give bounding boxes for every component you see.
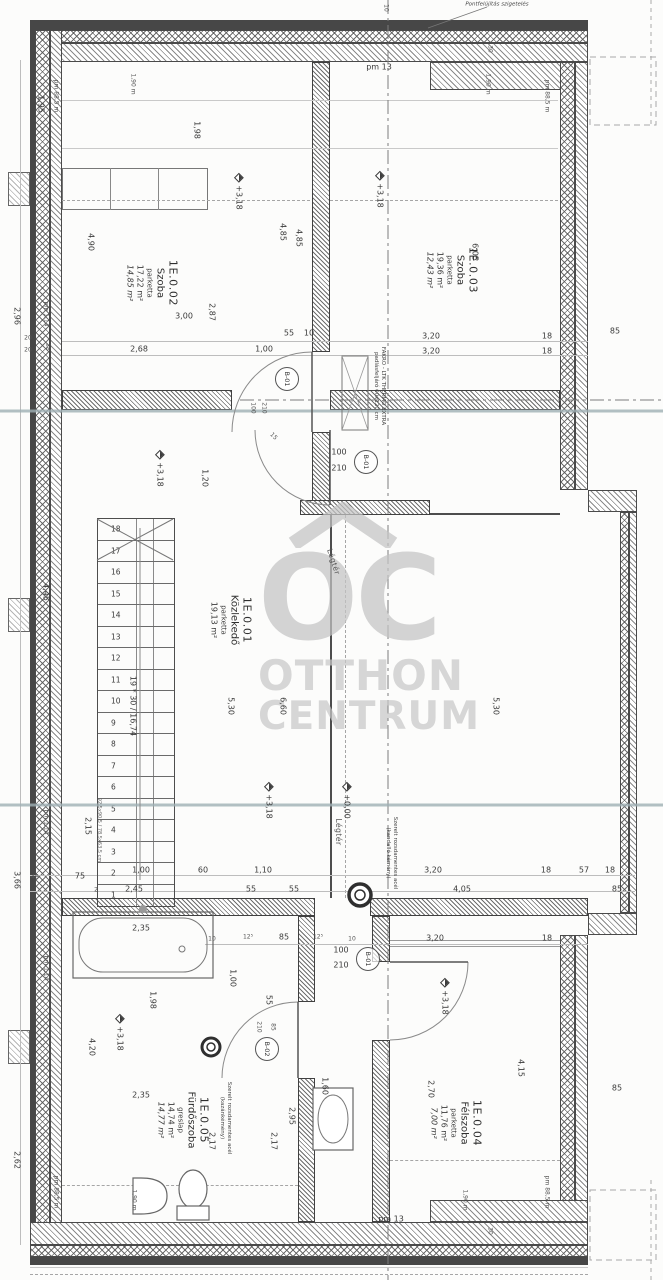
dimension-label: 3,20	[424, 867, 442, 876]
door-tag-b-01-2: B-01	[356, 947, 380, 971]
wall-interior-top-vertical	[312, 62, 330, 352]
dimension-label: 100	[331, 449, 346, 458]
wall-top-cross	[30, 30, 588, 43]
wardrobe-divider-1	[110, 168, 111, 210]
door-arc-felszoba	[390, 962, 468, 1040]
annotation-note: Szerelt rozsdamentes acél(kazánkémény)	[218, 1082, 232, 1155]
dimension-label: 5,30	[226, 697, 235, 715]
dimension-label: 6,60	[278, 697, 287, 715]
annotation-note: Pontfelújítás szigetelés	[465, 1, 528, 8]
wall-bottom-cross	[30, 1245, 588, 1257]
dimension-label: pm 88,5 m	[543, 80, 550, 113]
dimension-label: pm 13	[378, 1216, 404, 1225]
dimension-label: 2,68	[130, 346, 148, 355]
bathtub-outline	[73, 912, 213, 978]
dimension-label: +3,18	[234, 174, 243, 210]
stair-step-7: 7	[98, 756, 174, 778]
stair-step-8: 8	[98, 734, 174, 756]
knee-line-1	[62, 100, 558, 101]
dimension-label: 75	[75, 873, 85, 882]
chimney-boiler-inner	[207, 1043, 215, 1051]
toilet-bowl	[179, 1170, 207, 1208]
dimension-label: 210	[331, 465, 346, 474]
room-label-1e-0-03: 1E.0.03Szobaparketta19,36 m²12,43 m²	[425, 247, 480, 293]
annotation-note: FAKRO - LTK THERMO EXTRApadlásfeljáró 60…	[372, 347, 386, 425]
dimension-label: 55	[264, 995, 273, 1005]
dimension-label: 18	[542, 333, 552, 342]
washbasin-counter	[313, 1088, 353, 1150]
dimension-label: 4,85	[294, 229, 303, 247]
dimension-label: 2,87	[207, 303, 216, 321]
wardrobe-divider-2	[158, 168, 159, 210]
dimension-label: 10	[208, 937, 216, 944]
dimension-label: 3,20	[422, 333, 440, 342]
dimension-label: 85	[612, 1085, 622, 1094]
dimension-label: +3,18	[155, 451, 164, 487]
wardrobe	[62, 168, 208, 210]
outside-box-1	[8, 172, 30, 206]
roof-outline-top-right	[590, 57, 656, 125]
floor-plan: OC OTTHON CENTRUM 1817161514131211109876…	[0, 0, 663, 1280]
room-label-1e-0-01: 1E.0.01Közlekedőparketta19,13 m²	[209, 595, 254, 645]
dimension-label: 18	[542, 935, 552, 944]
stair-step-15: 15	[98, 584, 174, 606]
dimension-label: 20	[24, 336, 32, 343]
toilet-tank	[177, 1206, 209, 1220]
logo-word-otthon: OTTHON	[258, 655, 428, 697]
dimension-label: 85	[612, 886, 622, 895]
dimension-label: 12⁵	[243, 935, 253, 942]
stair-step-16: 16	[98, 562, 174, 584]
dimension-label: 12⁵	[313, 935, 323, 942]
dimension-label: pm 88,5 m	[543, 1176, 550, 1209]
wall-hall-right-lower	[372, 1040, 390, 1222]
wall-left-cross	[35, 30, 50, 1257]
dimension-label: 55	[246, 886, 256, 895]
dim-line-left-vertical	[20, 60, 21, 1245]
stair-step-5: 5	[98, 799, 174, 821]
dimension-label: 210	[260, 402, 267, 413]
wall-top-dark	[30, 20, 588, 30]
dimension-label: pm 1,14	[42, 302, 49, 327]
dimension-label: 18	[44, 343, 51, 351]
dimension-label: pm 88,5 m	[52, 1176, 59, 1209]
room-label-1e-0-02: 1E.0.02Szobaparketta17,22 m²14,85 m²	[125, 260, 180, 306]
dimension-label: Légtér	[325, 548, 341, 576]
dimension-label: +3,18	[264, 783, 273, 819]
annotation-note: Szerelt rozsdamentes acél(kandalló kémén…	[384, 817, 398, 890]
dimension-label: 100	[249, 402, 256, 413]
dimension-label: 1,98	[148, 991, 157, 1009]
dimension-label: Légtér	[334, 818, 342, 845]
bottom-dash-line	[30, 1274, 588, 1275]
wall-right-outer-diag	[629, 512, 637, 913]
stair-step-17: 17	[98, 541, 174, 563]
dimension-label: 1,90 m	[129, 73, 136, 94]
dimension-label: +3,18	[115, 1015, 124, 1051]
wall-bath-right-lower	[298, 1078, 315, 1222]
washbasin-bowl	[318, 1095, 348, 1143]
dimension-label: 10	[382, 4, 389, 12]
dimension-label: 1,00	[228, 969, 237, 987]
dim-line-5	[205, 944, 588, 945]
dimension-label: 19 * 30 / 16,74	[128, 676, 137, 736]
dimension-label: 4,20	[87, 1038, 96, 1056]
dimension-label: 15	[268, 432, 278, 442]
wall-bottomright-diag	[430, 1200, 588, 1222]
dimension-label: 48	[31, 875, 39, 882]
dimension-label: 2,35	[132, 1092, 150, 1101]
dimension-label: pm 88,5 m	[52, 80, 59, 113]
dimension-label: 1,98	[192, 121, 201, 139]
dimension-label: 2	[94, 888, 98, 895]
outside-box-2	[8, 598, 30, 632]
dimension-label: 57	[579, 867, 589, 876]
wall-right-lower-cross	[560, 935, 575, 1222]
dimension-label: 3,66	[12, 871, 21, 889]
door-tag-b-01-1: B-01	[354, 450, 378, 474]
wall-bottom-diag	[30, 1222, 588, 1245]
dimension-label: 4,85	[278, 223, 287, 241]
dimension-label: 1,90 m	[484, 73, 491, 94]
chimney-fireplace	[349, 884, 371, 906]
chimney-boiler	[202, 1038, 220, 1056]
knee-dash-2	[330, 200, 558, 201]
wall-interior-h-right	[330, 390, 560, 410]
dimension-label: pm 1,14	[42, 810, 49, 835]
dimension-label: 2,96	[12, 307, 21, 325]
dimension-label: 55	[289, 886, 299, 895]
dimension-label: 4,15	[516, 1059, 525, 1077]
dimension-label: 2,62	[12, 1151, 21, 1169]
dimension-label: 1,60	[320, 1077, 329, 1095]
dimension-label: 1,20	[200, 469, 209, 487]
dimension-label: 2,70	[426, 1080, 435, 1098]
dimension-label: 92,5x90,5 / 78,5x63,5 cm	[95, 798, 101, 863]
dimension-label: 18	[541, 867, 551, 876]
dimension-label: pm 13	[366, 64, 392, 73]
dimension-label: 10	[348, 937, 356, 944]
knee-dash-3	[62, 1185, 298, 1186]
dimension-label: 4,45	[41, 583, 50, 601]
logo-letters: OC	[258, 550, 428, 647]
dimension-label: 10	[304, 330, 314, 339]
stair-step-6: 6	[98, 777, 174, 799]
felszoba-kneewall-2	[390, 946, 560, 947]
dimension-label: 2,35	[132, 925, 150, 934]
wall-right-lower-diag	[575, 935, 588, 1222]
bidet	[133, 1178, 167, 1214]
wall-right-upper-diag	[575, 62, 588, 490]
dimension-label: 1,95	[36, 95, 45, 113]
dimension-label: 85	[279, 934, 289, 943]
dimension-label: +0,00	[342, 783, 351, 819]
dimension-label: 85	[610, 328, 620, 337]
dimension-label: 2,45	[125, 886, 143, 895]
dimension-label: 210	[255, 1021, 262, 1032]
dimension-label: 2,15	[83, 817, 92, 835]
dimension-label: 1,00	[132, 867, 150, 876]
dimension-label: 18	[605, 867, 615, 876]
knee-line-2	[62, 148, 558, 149]
wall-right-outer-cross	[620, 512, 629, 913]
dimension-label: 2,95	[287, 1107, 296, 1125]
stair-step-14: 14	[98, 605, 174, 627]
wall-top-diag	[30, 43, 588, 62]
wall-right-jut-bottom	[588, 913, 637, 935]
bathtub-drain	[179, 946, 185, 952]
stair-step-4: 4	[98, 820, 174, 842]
legter-edge-line	[430, 513, 560, 515]
dim-line-2	[62, 355, 588, 356]
dim-line-1	[62, 341, 588, 342]
room-label-1e-0-05: 1E.0.05Fürdőszobagreslap14,74 m²14,77 m²	[156, 1092, 211, 1149]
legter-dash	[345, 515, 346, 898]
stair-step-3: 3	[98, 842, 174, 864]
dimension-label: 2,17	[269, 1132, 278, 1150]
wall-interior-h-left	[62, 390, 232, 410]
dimension-label: 5,30	[491, 697, 500, 715]
wall-mid-bottom-right	[370, 898, 588, 916]
outside-box-3	[8, 1030, 30, 1064]
dimension-label: 55	[284, 330, 294, 339]
dimension-label: 30	[486, 1227, 493, 1235]
dimension-label: 85	[269, 1023, 276, 1031]
dimension-label: 100	[333, 947, 348, 956]
dimension-label: 20	[24, 348, 32, 355]
dimension-label: 3,20	[422, 348, 440, 357]
dimension-label: 1,90 m	[461, 1189, 468, 1210]
stair-step-13: 13	[98, 627, 174, 649]
dimension-label: 1,90 m	[130, 1189, 137, 1210]
knee-dash-1	[62, 200, 310, 201]
dimension-label: +3,18	[375, 172, 384, 208]
door-arc-bedroom	[232, 352, 312, 432]
wall-right-jut-top	[588, 490, 637, 512]
dimension-label: 18	[542, 348, 552, 357]
wall-right-upper-cross	[560, 62, 575, 490]
room-label-1e-0-04: 1E.0.04Félszobaparketta11,76 m²7,00 m²	[429, 1100, 484, 1146]
dimension-label: 3,20	[426, 935, 444, 944]
dimension-label: 4,05	[453, 886, 471, 895]
dimension-label: 210	[333, 962, 348, 971]
stair-step-18: 18	[98, 519, 174, 541]
dimension-label: 4,90	[86, 233, 95, 251]
stair-step-12: 12	[98, 648, 174, 670]
wall-bath-right-upper	[298, 916, 315, 1002]
roof-outline-bottom-right	[590, 1190, 656, 1260]
dimension-label: 60	[198, 867, 208, 876]
wall-legter-top	[300, 500, 430, 515]
dimension-label: 1,10	[254, 867, 272, 876]
dimension-label: +3,18	[440, 979, 449, 1015]
dimension-label: 30	[486, 45, 493, 53]
door-tag-b-01-0: B-01	[275, 367, 299, 391]
bottom-thin-line	[30, 1267, 588, 1268]
dimension-label: pm 1,14	[42, 956, 49, 981]
knee-dash-4	[390, 1160, 560, 1161]
door-tag-b-02-3: B-02	[255, 1037, 279, 1061]
wall-bottom-dark	[30, 1257, 588, 1265]
wall-left-diag	[50, 30, 62, 1257]
dimension-label: 1,00	[255, 346, 273, 355]
felszoba-kneewall-1	[390, 940, 560, 941]
dimension-label: 3,00	[175, 313, 193, 322]
